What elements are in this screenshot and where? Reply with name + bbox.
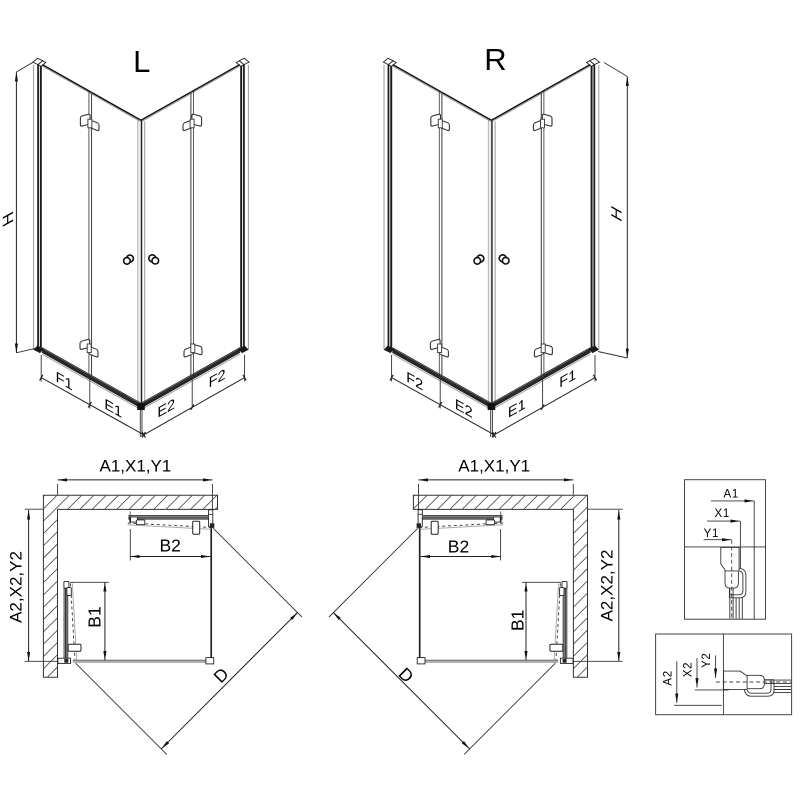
svg-text:A1,X1,Y1: A1,X1,Y1	[458, 457, 530, 476]
svg-text:Y1: Y1	[704, 528, 719, 540]
svg-text:B2: B2	[159, 536, 180, 556]
svg-text:L: L	[133, 44, 150, 79]
svg-text:A1,X1,Y1: A1,X1,Y1	[99, 457, 171, 476]
svg-text:B1: B1	[85, 606, 105, 627]
svg-text:A2: A2	[663, 670, 675, 685]
svg-text:A2,X2,Y2: A2,X2,Y2	[598, 550, 617, 622]
svg-text:A1: A1	[723, 489, 738, 501]
svg-text:X1: X1	[714, 508, 729, 520]
svg-text:Y2: Y2	[701, 652, 713, 667]
svg-text:B2: B2	[448, 537, 469, 557]
svg-text:R: R	[484, 42, 506, 77]
svg-text:X2: X2	[683, 662, 695, 677]
svg-text:B1: B1	[508, 610, 528, 631]
svg-text:A2,X2,Y2: A2,X2,Y2	[7, 551, 26, 623]
